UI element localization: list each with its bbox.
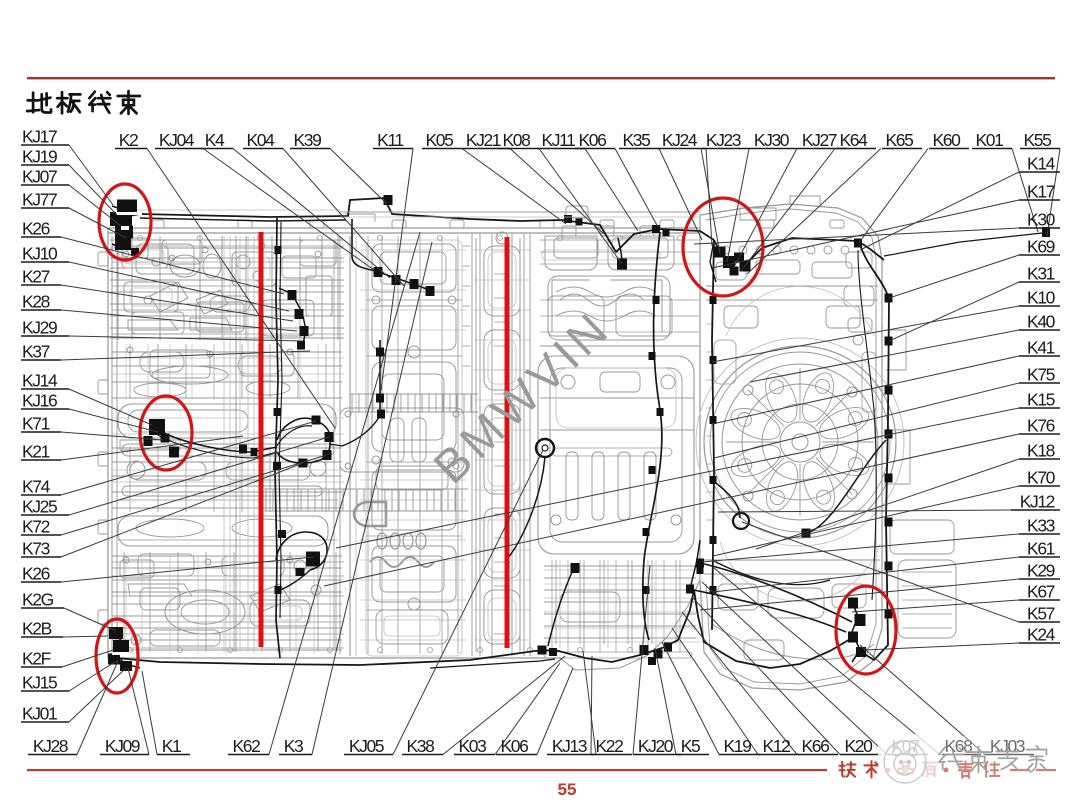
svg-text:K66: K66 [802, 736, 830, 756]
svg-text:K71: K71 [22, 414, 50, 434]
svg-text:KJ29: KJ29 [22, 318, 57, 338]
svg-text:K22: K22 [596, 736, 624, 756]
svg-text:KJ09: KJ09 [105, 736, 140, 756]
svg-text:KJ16: KJ16 [22, 391, 57, 411]
svg-text:KJ24: KJ24 [662, 130, 698, 150]
svg-text:K41: K41 [1027, 338, 1055, 358]
svg-text:KJ27: KJ27 [802, 130, 837, 150]
svg-text:K2B: K2B [22, 619, 52, 639]
svg-text:K06: K06 [501, 736, 529, 756]
svg-text:KJ15: KJ15 [22, 673, 57, 693]
svg-text:K37: K37 [22, 342, 50, 362]
svg-text:KJ04: KJ04 [159, 130, 195, 150]
svg-text:KJ11: KJ11 [542, 130, 576, 150]
svg-text:K20: K20 [845, 736, 874, 756]
svg-text:K31: K31 [1027, 264, 1055, 284]
svg-text:K2G: K2G [22, 590, 54, 610]
svg-text:K40: K40 [1027, 312, 1056, 332]
svg-text:K30: K30 [1027, 210, 1056, 230]
svg-text:KJ17: KJ17 [22, 127, 57, 147]
svg-text:K4: K4 [205, 130, 225, 150]
svg-text:K61: K61 [1027, 539, 1055, 559]
svg-text:K10: K10 [1027, 288, 1056, 308]
svg-text:K21: K21 [22, 442, 50, 462]
svg-text:K05: K05 [426, 130, 454, 150]
svg-text:KJ28: KJ28 [33, 736, 68, 756]
svg-text:KJ14: KJ14 [22, 371, 58, 391]
svg-text:KJ01: KJ01 [22, 704, 57, 724]
svg-text:K60: K60 [933, 130, 962, 150]
svg-text:K01: K01 [976, 130, 1004, 150]
svg-text:K70: K70 [1027, 468, 1056, 488]
svg-text:K39: K39 [294, 130, 322, 150]
svg-text:KJ13: KJ13 [552, 736, 587, 756]
svg-text:KJ23: KJ23 [706, 130, 741, 150]
svg-text:K19: K19 [724, 736, 752, 756]
svg-text:KJ25: KJ25 [22, 497, 57, 517]
svg-text:K35: K35 [623, 130, 651, 150]
svg-text:K26: K26 [22, 219, 50, 239]
svg-text:KJ12: KJ12 [1020, 492, 1055, 512]
svg-text:K55: K55 [1024, 130, 1052, 150]
svg-text:K64: K64 [840, 130, 869, 150]
svg-text:K73: K73 [22, 539, 50, 559]
svg-text:KJ21: KJ21 [466, 130, 501, 150]
svg-text:K11: K11 [377, 130, 403, 150]
svg-text:KJ19: KJ19 [22, 147, 57, 167]
svg-text:K2: K2 [119, 130, 138, 150]
svg-text:K29: K29 [1027, 561, 1055, 581]
svg-text:K74: K74 [22, 477, 51, 497]
svg-text:KJ30: KJ30 [754, 130, 790, 150]
svg-text:K27: K27 [22, 267, 50, 287]
svg-text:K08: K08 [503, 130, 531, 150]
svg-text:K69: K69 [1027, 237, 1055, 257]
svg-text:K72: K72 [22, 517, 50, 537]
svg-text:K76: K76 [1027, 416, 1055, 436]
svg-text:K67: K67 [1027, 582, 1055, 602]
svg-text:K38: K38 [407, 736, 435, 756]
svg-text:KJ05: KJ05 [349, 736, 384, 756]
svg-text:K18: K18 [1027, 441, 1055, 461]
svg-text:K62: K62 [233, 736, 261, 756]
svg-text:KJ20: KJ20 [638, 736, 674, 756]
svg-text:K26: K26 [22, 564, 50, 584]
svg-text:K28: K28 [22, 292, 50, 312]
svg-text:K03: K03 [459, 736, 487, 756]
svg-text:55: 55 [558, 780, 577, 799]
svg-text:KJ77: KJ77 [22, 190, 57, 210]
svg-text:K33: K33 [1027, 516, 1055, 536]
svg-text:BMWVIN: BMWVIN [423, 300, 620, 493]
svg-text:K14: K14 [1027, 154, 1056, 174]
svg-text:K2F: K2F [22, 649, 51, 669]
svg-text:K5: K5 [681, 736, 700, 756]
svg-text:K1: K1 [162, 736, 181, 756]
svg-text:K06: K06 [579, 130, 607, 150]
svg-text:K04: K04 [247, 130, 276, 150]
svg-text:KJ07: KJ07 [22, 167, 57, 187]
svg-text:K24: K24 [1027, 625, 1056, 645]
svg-text:K15: K15 [1027, 390, 1055, 410]
svg-text:KJ10: KJ10 [22, 244, 58, 264]
svg-text:K17: K17 [1027, 182, 1055, 202]
svg-text:K3: K3 [284, 736, 303, 756]
svg-text:K12: K12 [763, 736, 791, 756]
svg-text:K65: K65 [886, 130, 914, 150]
svg-text:K57: K57 [1027, 604, 1055, 624]
svg-text:K75: K75 [1027, 365, 1055, 385]
